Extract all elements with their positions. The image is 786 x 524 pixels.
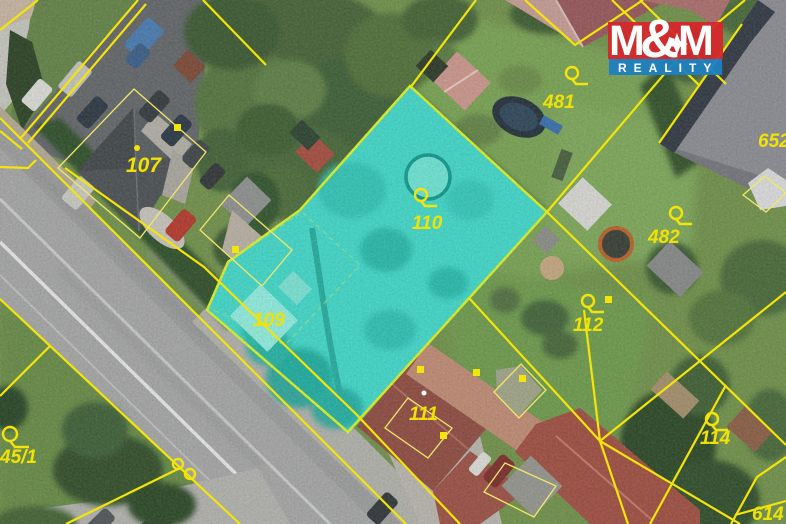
svg-text:614: 614 (752, 504, 784, 524)
svg-text:45/1: 45/1 (0, 447, 37, 468)
svg-text:107: 107 (126, 154, 162, 177)
svg-text:114: 114 (700, 428, 731, 449)
svg-text:482: 482 (647, 227, 680, 248)
svg-text:M: M (678, 17, 714, 65)
svg-text:112: 112 (573, 315, 604, 336)
svg-text:REALITY: REALITY (618, 61, 718, 75)
svg-text:652: 652 (758, 131, 786, 152)
svg-text:111: 111 (409, 404, 438, 425)
svg-text:110: 110 (412, 213, 443, 234)
svg-text:481: 481 (542, 92, 575, 113)
svg-text:109: 109 (253, 310, 285, 331)
